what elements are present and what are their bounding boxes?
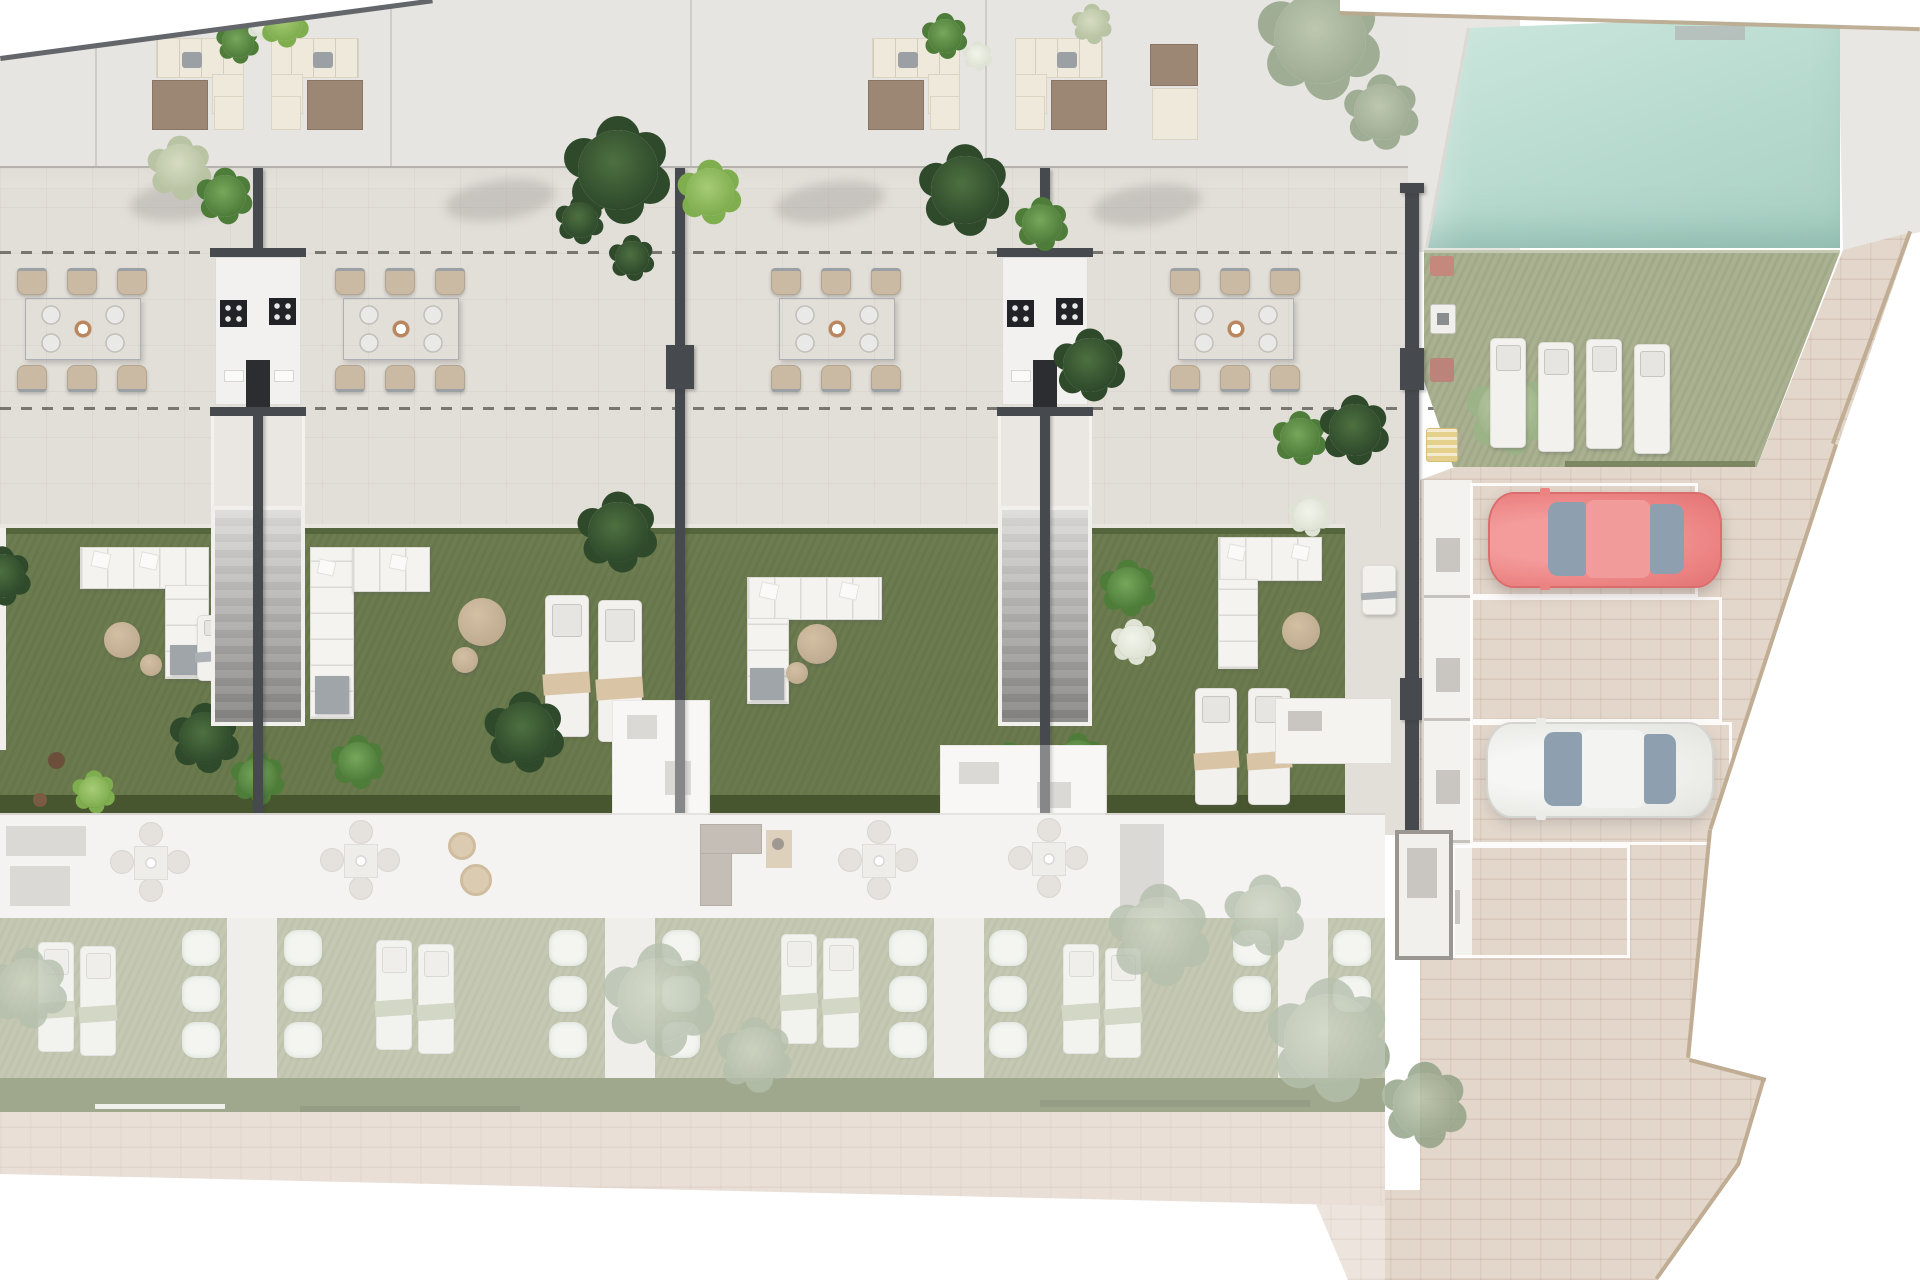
dining-chair xyxy=(821,268,851,295)
lower-patio xyxy=(1275,698,1392,764)
pillow xyxy=(389,553,409,571)
armchair xyxy=(1015,96,1045,130)
cooktop xyxy=(1056,298,1083,325)
white-shrub xyxy=(1233,976,1271,1012)
pod-door xyxy=(1436,538,1460,572)
sink xyxy=(224,370,244,382)
dining-table xyxy=(779,298,895,360)
sun-lounger xyxy=(376,940,412,1050)
sun-lounger xyxy=(1362,565,1396,615)
palm-tree xyxy=(1022,204,1062,244)
palm-tree xyxy=(1393,1073,1457,1137)
shrub xyxy=(222,26,254,58)
wicker-chair xyxy=(460,864,492,896)
dining-chair xyxy=(1170,365,1200,392)
walkway xyxy=(0,1108,1390,1208)
palm-tree xyxy=(618,958,702,1042)
poolside-lounger xyxy=(1430,304,1456,334)
palm-tree xyxy=(495,702,555,762)
white-shrub xyxy=(182,930,220,966)
wall-cap xyxy=(997,407,1093,416)
palm-tree xyxy=(1284,994,1376,1086)
outdoor-rug xyxy=(1051,80,1107,130)
white-shrub xyxy=(182,976,220,1012)
dining-chair xyxy=(385,365,415,392)
towel xyxy=(1361,591,1397,601)
tree xyxy=(686,168,734,216)
dining-chair xyxy=(117,268,147,295)
towel xyxy=(1437,313,1449,325)
pillow xyxy=(1227,543,1247,561)
wicker-chair xyxy=(448,832,476,860)
roof-seam xyxy=(985,0,987,168)
white-shrub xyxy=(284,976,322,1012)
dining-set xyxy=(1160,266,1310,390)
palm-tree xyxy=(338,742,378,782)
stair-flight xyxy=(1050,510,1089,722)
sink xyxy=(274,370,294,382)
sun-lounger xyxy=(781,934,817,1044)
sun-lounger xyxy=(1634,344,1670,454)
white-shrub xyxy=(549,1022,587,1058)
side-mirror xyxy=(1536,718,1546,726)
rear-window xyxy=(1644,734,1676,804)
dining-table xyxy=(343,298,459,360)
garden-lawn-edge xyxy=(0,528,1345,534)
dining-chair xyxy=(67,268,97,295)
pouf xyxy=(797,624,837,664)
tree xyxy=(156,144,204,192)
coffee-table xyxy=(313,52,333,68)
dining-set xyxy=(761,266,911,390)
party-wall xyxy=(675,168,685,836)
dining-chair xyxy=(385,268,415,295)
poolside-lounger xyxy=(1430,358,1454,382)
outdoor-rug xyxy=(307,80,363,130)
pool-lawn-edge xyxy=(1424,250,1840,253)
shrub xyxy=(78,776,110,808)
lounger-cushion xyxy=(605,609,635,642)
red-car xyxy=(1488,492,1722,588)
palm-tree xyxy=(1235,885,1295,945)
wall-recess xyxy=(1033,360,1057,408)
white-shrub xyxy=(967,45,989,67)
dining-chair xyxy=(17,268,47,295)
wall-cap xyxy=(997,248,1093,257)
pouf xyxy=(1282,612,1320,650)
side-mirror xyxy=(1540,488,1550,496)
pool-deck xyxy=(1838,10,1920,252)
palm-tree xyxy=(727,1027,783,1083)
wall-recess xyxy=(246,360,270,408)
white-shrub xyxy=(989,976,1027,1012)
party-wall xyxy=(666,345,694,389)
white-shrub xyxy=(889,1022,927,1058)
pool-step xyxy=(1675,26,1745,40)
bush xyxy=(1280,418,1320,458)
roof-lounge-set xyxy=(1012,38,1107,133)
tree xyxy=(1077,9,1107,39)
side-mirror xyxy=(1540,582,1550,590)
side-mirror xyxy=(1536,812,1546,820)
pouf xyxy=(786,662,808,684)
towel xyxy=(596,676,644,700)
pouf xyxy=(140,654,162,676)
outdoor-rug xyxy=(152,80,208,130)
pod-divider xyxy=(1424,595,1472,598)
throw-blanket xyxy=(315,676,349,714)
roof-lounge-set xyxy=(1150,44,1200,140)
lower-terrace-edge xyxy=(0,813,1385,815)
lounger-cushion xyxy=(1202,696,1230,723)
planter-bar xyxy=(95,1104,225,1109)
cooktop xyxy=(220,300,247,327)
pillow xyxy=(91,550,112,569)
bistro-set xyxy=(320,820,400,900)
palm-tree xyxy=(1329,404,1381,456)
palm-tree xyxy=(931,156,999,224)
car-roof xyxy=(1582,730,1644,808)
pouf xyxy=(104,622,140,658)
white-shrub xyxy=(889,976,927,1012)
dining-chair xyxy=(771,365,801,392)
bistro-set xyxy=(838,820,918,900)
patio-furniture xyxy=(959,762,999,784)
hedge-trim xyxy=(1565,461,1755,467)
plant-pot xyxy=(48,752,65,769)
dining-chair xyxy=(1220,365,1250,392)
patio-furniture xyxy=(1407,848,1437,898)
lower-patio xyxy=(1395,830,1453,960)
swimming-pool xyxy=(1428,14,1840,248)
car-roof xyxy=(1586,500,1650,578)
dining-set xyxy=(7,266,157,390)
stair-flight xyxy=(263,510,302,722)
palm-tree xyxy=(1063,338,1117,392)
dining-chair xyxy=(1270,268,1300,295)
palm-tree xyxy=(588,502,648,562)
dining-chair xyxy=(335,268,365,295)
sun-lounger xyxy=(823,938,859,1048)
armchair xyxy=(271,96,301,130)
dining-set xyxy=(325,266,475,390)
sun-lounger xyxy=(1538,342,1574,452)
white-shrub xyxy=(889,930,927,966)
sun-lounger xyxy=(545,595,589,737)
fire-pit xyxy=(772,838,784,850)
white-shrub xyxy=(989,1022,1027,1058)
armchair xyxy=(214,96,244,130)
tree xyxy=(204,175,246,217)
dining-chair xyxy=(435,365,465,392)
pouf xyxy=(458,598,506,646)
pillow xyxy=(1291,543,1311,561)
dining-chair xyxy=(435,268,465,295)
white-shrub xyxy=(284,1022,322,1058)
cooktop xyxy=(269,298,296,325)
sun-lounger xyxy=(1063,944,1099,1054)
kitchen-wall xyxy=(210,248,306,416)
pillow xyxy=(317,558,337,576)
outdoor-rug xyxy=(868,80,924,130)
white-shrub xyxy=(549,930,587,966)
palm-tree xyxy=(562,202,598,238)
dining-chair xyxy=(1220,268,1250,295)
dining-chair xyxy=(1270,365,1300,392)
windshield xyxy=(1544,732,1582,806)
site-plan xyxy=(0,0,1920,1280)
sun-lounger xyxy=(418,944,454,1054)
sun-lounger xyxy=(1586,339,1622,449)
dining-chair xyxy=(871,268,901,295)
planter-bar xyxy=(300,1106,520,1112)
towel xyxy=(543,671,591,695)
rear-window xyxy=(1650,504,1684,574)
plant-pot xyxy=(33,793,47,807)
bistro-set xyxy=(110,822,190,902)
patio-furniture xyxy=(6,826,86,856)
dining-table xyxy=(25,298,141,360)
palm-tree xyxy=(615,241,649,275)
stair-flight xyxy=(215,510,254,722)
white-car xyxy=(1486,722,1714,818)
boundary-wall xyxy=(1400,348,1424,390)
coffee-table xyxy=(898,52,918,68)
wall-cap xyxy=(210,248,306,257)
poolside-lounger xyxy=(1426,428,1458,462)
patio-furniture xyxy=(1288,711,1322,731)
white-shrub xyxy=(1117,625,1151,659)
palm-tree xyxy=(1122,897,1198,973)
patio-furniture xyxy=(10,866,70,906)
wall-cap xyxy=(210,407,306,416)
parking-stall xyxy=(1452,845,1630,958)
garden-sofa xyxy=(1218,579,1258,669)
parking-stall xyxy=(1470,597,1722,722)
boundary-wall xyxy=(1400,183,1424,193)
throw-blanket xyxy=(750,668,784,700)
shrub xyxy=(928,19,962,53)
white-shrub xyxy=(1333,930,1371,966)
palm-tree xyxy=(1354,84,1410,140)
white-shrub xyxy=(1294,499,1326,531)
bush xyxy=(1107,567,1149,609)
pod-door xyxy=(1436,770,1460,804)
pod-divider xyxy=(1424,718,1472,721)
stair-flight xyxy=(1002,510,1041,722)
cooktop xyxy=(1007,300,1034,327)
pouf xyxy=(452,647,478,673)
bistro-set xyxy=(1008,818,1088,898)
pillow xyxy=(139,551,160,570)
roof-lounge-set xyxy=(268,38,363,133)
dining-chair xyxy=(771,268,801,295)
sun-lounger xyxy=(1195,688,1237,805)
patio-furniture xyxy=(1120,824,1164,908)
roof-seam xyxy=(690,0,692,168)
dining-chair xyxy=(335,365,365,392)
dining-table xyxy=(1178,298,1294,360)
dining-chair xyxy=(871,365,901,392)
kitchen-wall xyxy=(997,248,1093,416)
pod-door xyxy=(1436,658,1460,692)
dining-chair xyxy=(17,365,47,392)
poolside-lounger xyxy=(1430,256,1454,276)
dining-chair xyxy=(821,365,851,392)
pillow xyxy=(839,581,860,600)
sun-lounger xyxy=(80,946,116,1056)
roof-seam xyxy=(390,0,392,168)
dining-chair xyxy=(1170,268,1200,295)
pillow xyxy=(759,581,780,600)
white-shrub xyxy=(549,976,587,1012)
outdoor-rug xyxy=(1150,44,1198,86)
patio-furniture xyxy=(627,715,657,739)
boundary-wall xyxy=(1405,185,1419,835)
coffee-table xyxy=(1057,52,1077,68)
planter-bar xyxy=(1040,1100,1310,1107)
lounger-cushion xyxy=(552,604,582,637)
windshield xyxy=(1548,502,1586,576)
sink xyxy=(1011,370,1031,382)
roof-sofa xyxy=(1152,88,1198,140)
dining-chair xyxy=(117,365,147,392)
lounge-sofa xyxy=(700,824,762,854)
white-shrub xyxy=(182,1022,220,1058)
white-shrub xyxy=(284,930,322,966)
armchair xyxy=(930,96,960,130)
sun-lounger xyxy=(1490,338,1526,448)
dining-chair xyxy=(67,365,97,392)
coffee-table xyxy=(182,52,202,68)
palm-tree xyxy=(0,958,58,1018)
palm-tree xyxy=(578,130,658,210)
white-shrub xyxy=(989,930,1027,966)
towel xyxy=(1193,751,1239,771)
boundary-wall xyxy=(1400,678,1424,720)
